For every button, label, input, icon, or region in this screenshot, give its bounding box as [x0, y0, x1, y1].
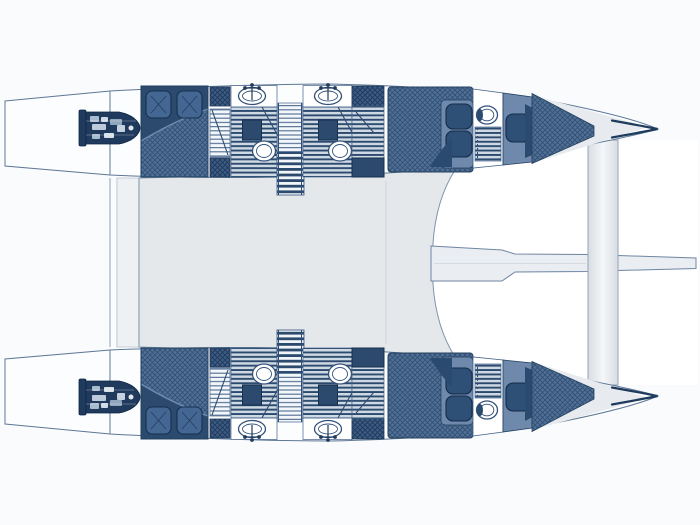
- floor-plan-canvas: [0, 0, 700, 525]
- aft-cockpit-strip: [117, 178, 139, 347]
- bridgedeck-saloon: [139, 170, 455, 357]
- forward-crossbeam: [588, 140, 618, 385]
- catamaran-floor-plan: [0, 0, 700, 525]
